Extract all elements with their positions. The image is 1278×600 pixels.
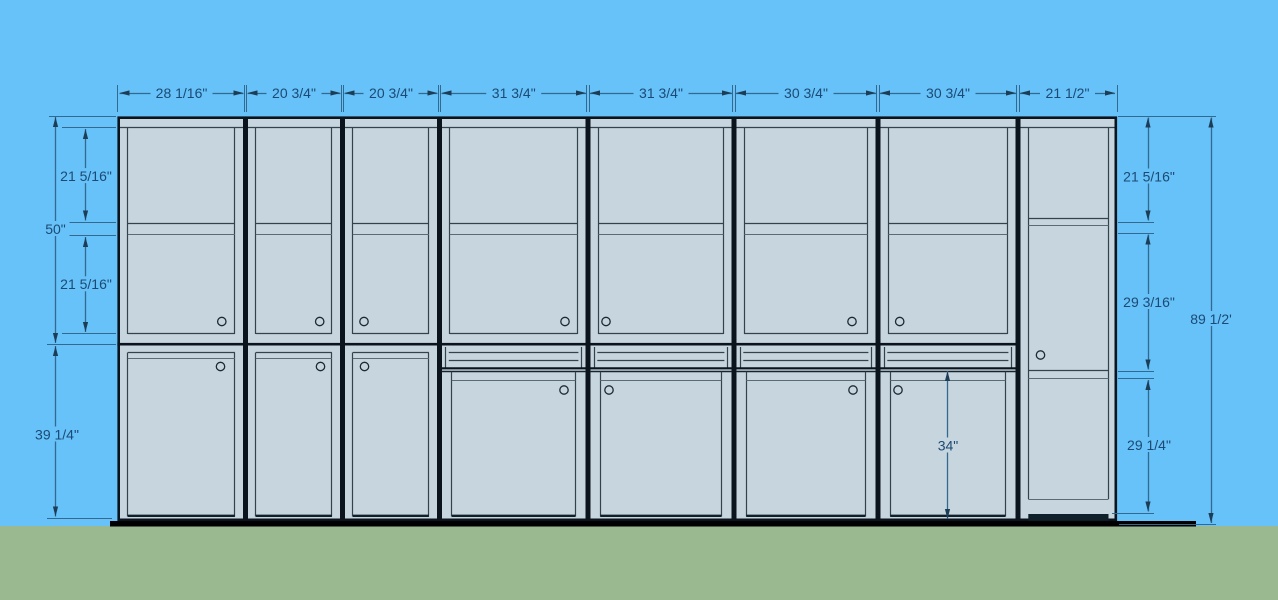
svg-text:28 1/16": 28 1/16" [156, 85, 208, 101]
svg-text:20 3/4": 20 3/4" [369, 85, 413, 101]
svg-text:21 5/16": 21 5/16" [60, 276, 112, 292]
svg-text:21 1/2": 21 1/2" [1046, 85, 1090, 101]
svg-text:30 3/4": 30 3/4" [784, 85, 828, 101]
svg-text:21 5/16": 21 5/16" [60, 168, 112, 184]
svg-text:31 3/4": 31 3/4" [492, 85, 536, 101]
svg-text:31 3/4": 31 3/4" [639, 85, 683, 101]
svg-text:50": 50" [45, 221, 66, 237]
svg-text:39 1/4": 39 1/4" [35, 426, 79, 442]
svg-text:21 5/16": 21 5/16" [1123, 168, 1175, 184]
svg-text:20 3/4": 20 3/4" [272, 85, 316, 101]
svg-text:34": 34" [938, 437, 959, 453]
svg-text:29 3/16": 29 3/16" [1123, 294, 1175, 310]
svg-text:89 1/2': 89 1/2' [1190, 311, 1232, 327]
svg-text:29 1/4": 29 1/4" [1127, 437, 1171, 453]
svg-text:30 3/4": 30 3/4" [926, 85, 970, 101]
